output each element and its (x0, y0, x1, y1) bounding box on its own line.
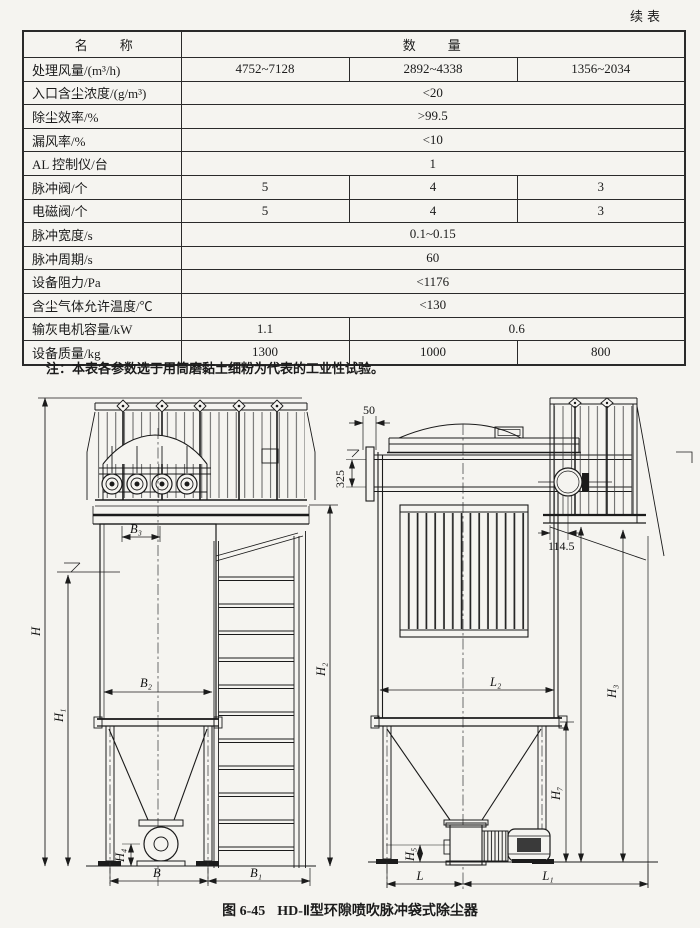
figure-title: HD-Ⅱ型环隙喷吹脉冲袋式除尘器 (277, 904, 478, 919)
scanned-book-page: { "page": { "continued_label": "续表" }, "… (0, 0, 700, 928)
staircase (214, 531, 306, 868)
dim-label-H1: H₁ (52, 709, 66, 723)
dim-label-H2: H₂ (314, 662, 328, 677)
dust-collector-drawing: H H₁ H₂ H₄ B₃ B₂ B B₁ (0, 0, 700, 928)
dim-label-H: H (29, 626, 43, 637)
dim-label-H4: H₄ (113, 849, 127, 863)
dim-label-50: 50 (363, 403, 375, 417)
dim-label-H5: H₅ (403, 848, 417, 862)
dim-label-B: B (153, 866, 161, 880)
dim-label-H7: H₇ (549, 787, 563, 801)
figure-number: 图 6-45 (222, 904, 265, 919)
side-view: 50 325 114.5 L₂ H₇ H₃ H₅ L L₁ (333, 398, 692, 890)
dim-label-B3: B₃ (130, 522, 142, 536)
dim-label-L1: L₁ (541, 869, 553, 883)
figure-caption: 图 6-45HD-Ⅱ型环隙喷吹脉冲袋式除尘器 (0, 900, 700, 920)
dim-label-B2: B₂ (140, 676, 153, 690)
dim-label-L: L (416, 869, 424, 883)
dim-label-114-5: 114.5 (548, 539, 575, 553)
dim-label-325: 325 (333, 470, 347, 488)
dim-label-B1: B₁ (250, 866, 262, 880)
dim-label-H3: H₃ (605, 685, 619, 699)
front-view: H H₁ H₂ H₄ B₃ B₂ B B₁ (29, 398, 338, 886)
outlet-platform (538, 398, 692, 560)
dim-label-L2: L₂ (489, 675, 502, 689)
